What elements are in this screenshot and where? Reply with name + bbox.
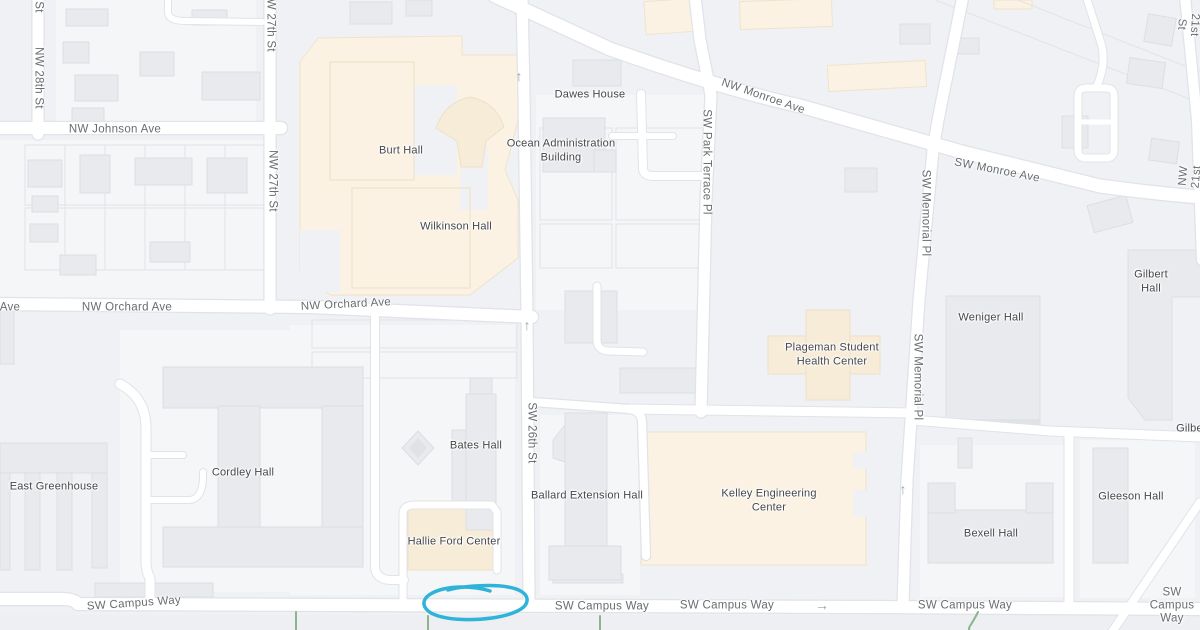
map-base-layer (0, 0, 1200, 630)
gleeson-building (1093, 448, 1128, 563)
gilbert-building (1128, 250, 1200, 420)
weniger-building (946, 296, 1040, 424)
kelley-building (641, 432, 875, 565)
ocean-admin-building (543, 118, 616, 172)
map-canvas[interactable]: St NW 28th St NW Johnson Ave NW 27th St … (0, 0, 1200, 630)
plageman-building (768, 310, 880, 400)
dawes-house-building (573, 60, 621, 86)
east-greenhouse-building (0, 302, 107, 570)
